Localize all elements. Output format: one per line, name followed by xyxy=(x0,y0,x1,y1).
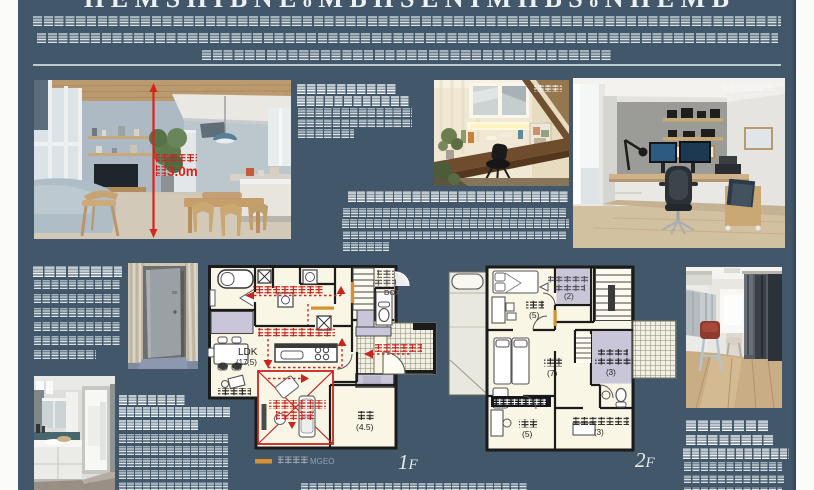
svg-text:LDK: LDK xyxy=(238,347,258,358)
svg-text:BOX: BOX xyxy=(384,288,400,297)
svg-text:(3): (3) xyxy=(606,368,616,377)
svg-text:(17,5): (17,5) xyxy=(236,358,257,367)
svg-text:(3): (3) xyxy=(594,428,604,437)
svg-text:MGEO: MGEO xyxy=(310,457,334,466)
svg-text:(4.5): (4.5) xyxy=(356,422,374,432)
svg-text:(7): (7) xyxy=(547,368,558,378)
svg-text:3.0m: 3.0m xyxy=(167,164,198,179)
svg-text:(5): (5) xyxy=(522,429,533,439)
svg-text:(2): (2) xyxy=(564,292,574,301)
svg-text:(5): (5) xyxy=(529,310,540,320)
